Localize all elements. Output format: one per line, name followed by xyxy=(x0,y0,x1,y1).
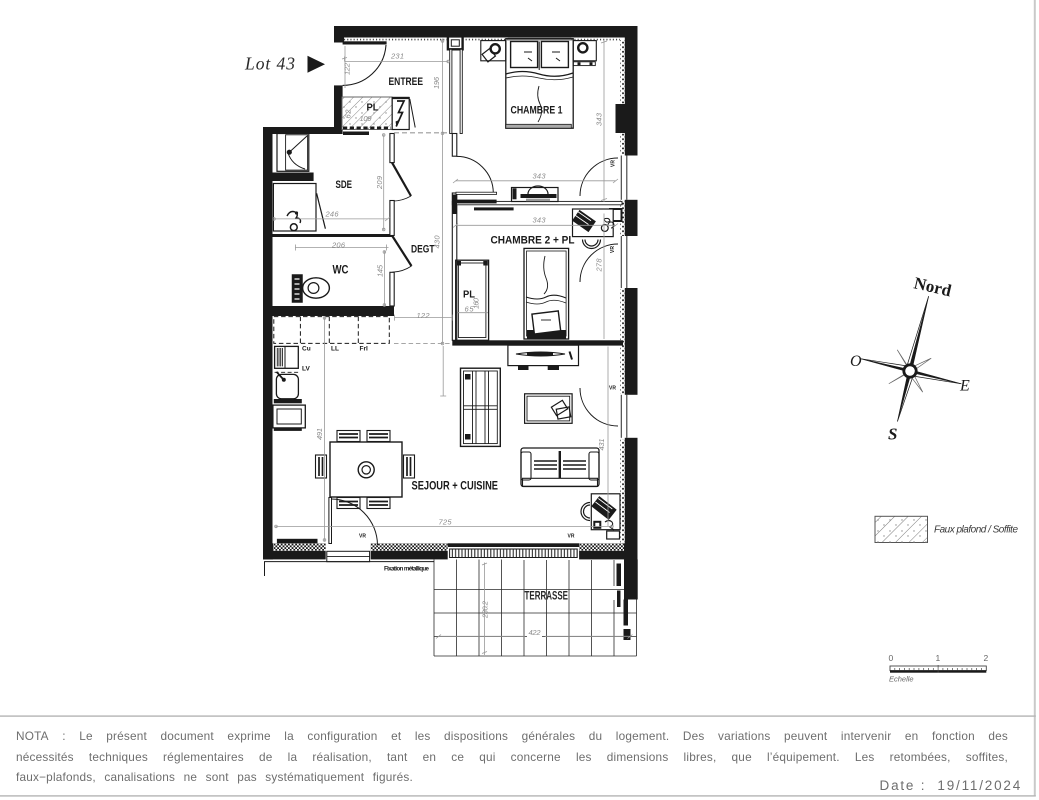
svg-text:343: 343 xyxy=(533,172,547,181)
svg-text:206: 206 xyxy=(331,241,346,250)
svg-text:Fixation métallique: Fixation métallique xyxy=(384,566,430,573)
svg-text:CHAMBRE 2 + PL: CHAMBRE 2 + PL xyxy=(491,235,575,247)
svg-text:62: 62 xyxy=(344,109,353,119)
svg-text:VR: VR xyxy=(610,246,616,253)
svg-text:Cu: Cu xyxy=(302,346,311,353)
svg-text:0: 0 xyxy=(889,653,894,663)
svg-text:278: 278 xyxy=(595,258,604,273)
svg-text:491: 491 xyxy=(315,428,324,440)
svg-text:122: 122 xyxy=(343,62,352,75)
svg-text:430: 430 xyxy=(433,235,442,249)
svg-text:SDE: SDE xyxy=(336,179,353,191)
svg-text:TERRASSE: TERRASSE xyxy=(525,591,569,603)
svg-text:422: 422 xyxy=(529,628,542,637)
svg-text:160: 160 xyxy=(472,297,481,309)
svg-text:246: 246 xyxy=(325,210,340,219)
svg-text:VR: VR xyxy=(611,160,617,167)
svg-text:2: 2 xyxy=(984,653,989,663)
svg-text:E: E xyxy=(959,378,970,395)
svg-text:DEGT: DEGT xyxy=(411,244,435,256)
svg-text:725: 725 xyxy=(439,518,453,527)
svg-text:S: S xyxy=(888,425,897,444)
svg-text:343: 343 xyxy=(595,112,604,126)
svg-text:1: 1 xyxy=(936,653,941,663)
svg-text:VR: VR xyxy=(609,386,616,392)
svg-text:O: O xyxy=(850,353,862,370)
svg-text:Lot 43: Lot 43 xyxy=(244,54,295,74)
svg-text:SEJOUR + CUISINE: SEJOUR + CUISINE xyxy=(412,481,499,493)
svg-text:343: 343 xyxy=(533,216,547,225)
svg-text:LL: LL xyxy=(331,346,339,353)
svg-text:122: 122 xyxy=(417,311,431,320)
svg-text:CHAMBRE 1: CHAMBRE 1 xyxy=(511,105,563,117)
svg-text:LV: LV xyxy=(302,366,310,373)
svg-text:230.2: 230.2 xyxy=(481,600,490,619)
svg-text:231: 231 xyxy=(390,52,404,61)
svg-text:196: 196 xyxy=(432,76,441,89)
svg-text:Nord: Nord xyxy=(912,273,954,300)
svg-text:ENTREE: ENTREE xyxy=(389,76,424,88)
svg-text:Faux plafond / Soffite: Faux plafond / Soffite xyxy=(934,525,1018,536)
svg-text:145: 145 xyxy=(376,264,385,277)
svg-text:WC: WC xyxy=(333,263,349,277)
svg-text:FrI: FrI xyxy=(360,346,369,353)
svg-text:PL: PL xyxy=(367,103,379,114)
svg-text:109: 109 xyxy=(360,114,373,123)
svg-text:209: 209 xyxy=(375,175,384,190)
svg-text:VR: VR xyxy=(359,534,366,540)
svg-text:Echelle: Echelle xyxy=(889,675,914,684)
svg-text:431: 431 xyxy=(597,439,606,451)
svg-text:VR: VR xyxy=(568,534,575,540)
